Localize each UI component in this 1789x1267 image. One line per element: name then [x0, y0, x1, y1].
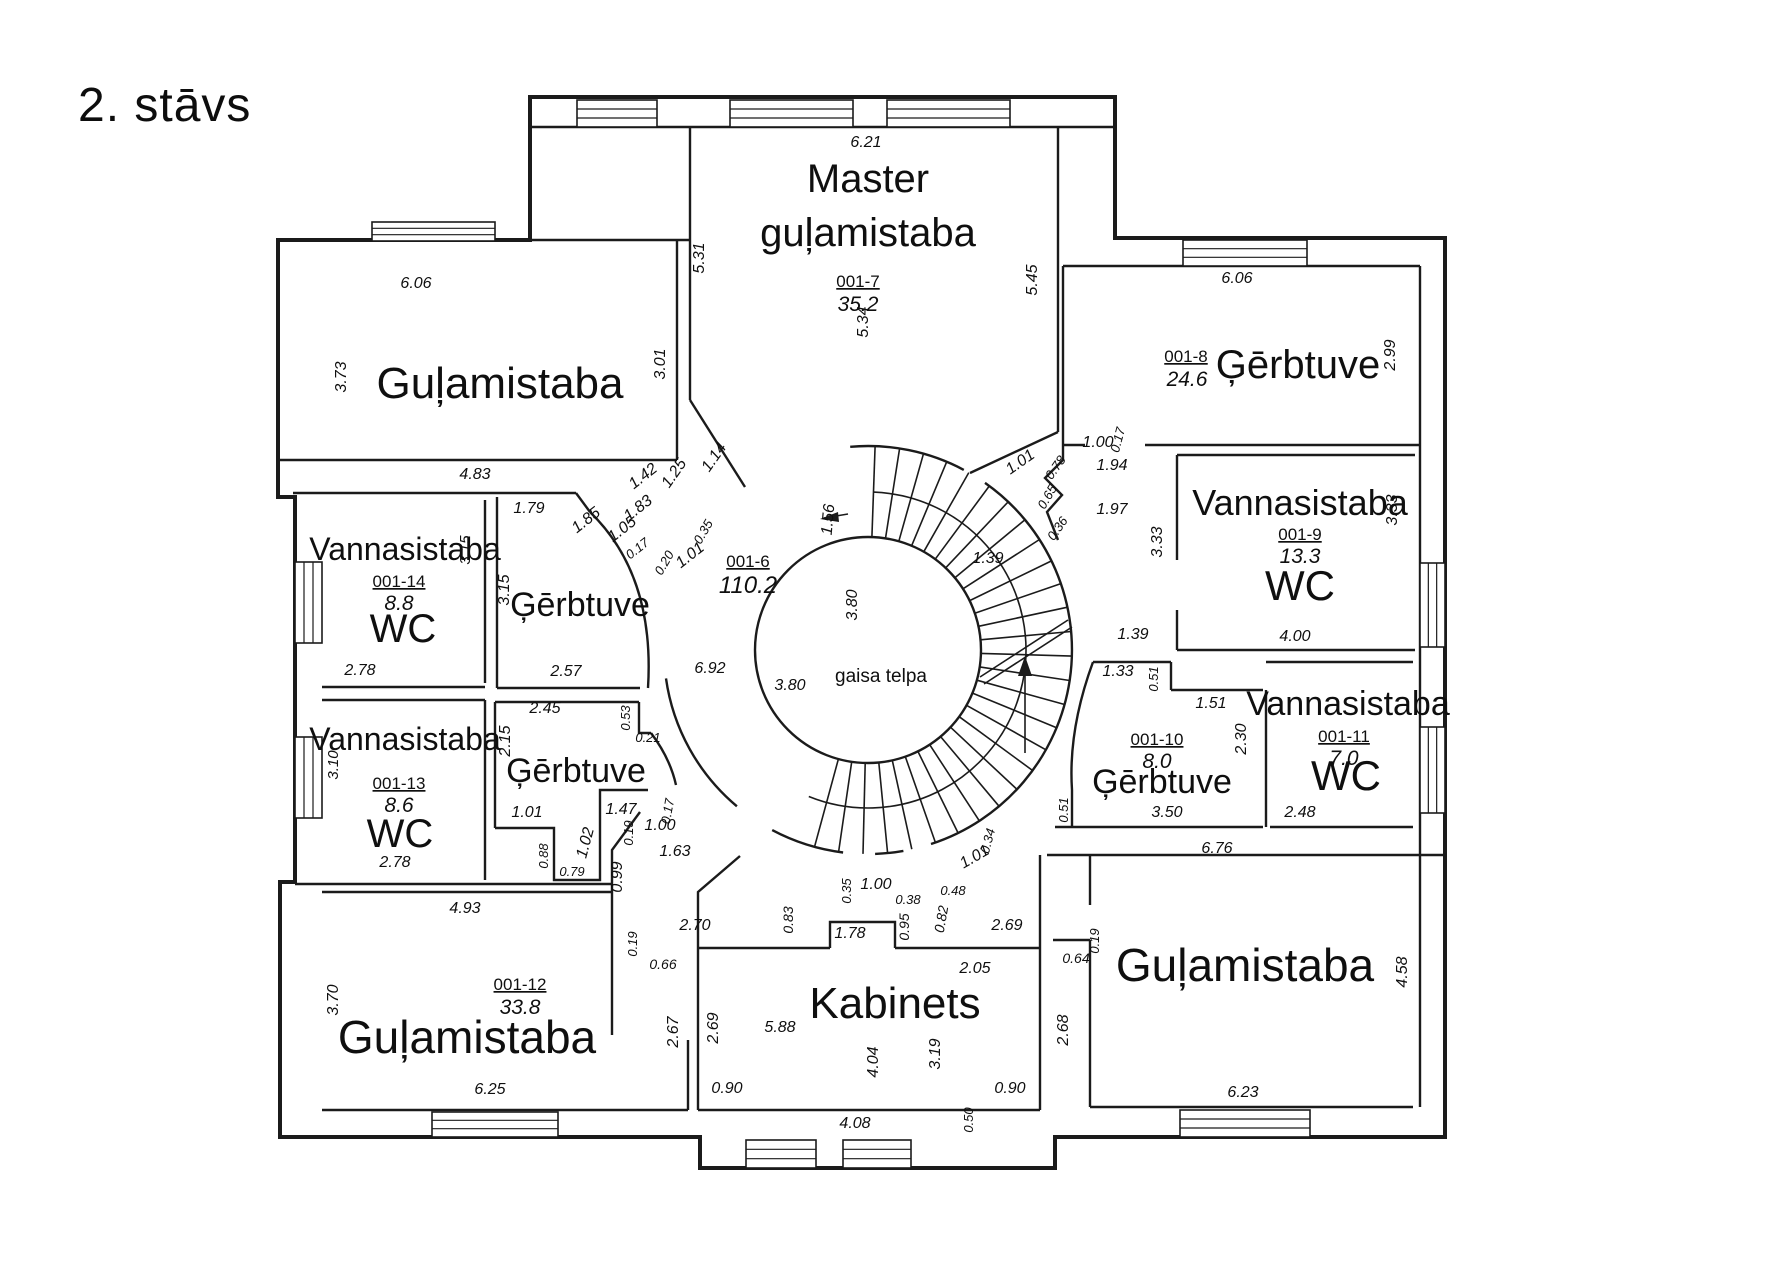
dimension-label: 3.50: [1151, 804, 1182, 821]
dimension-label: 4.04: [865, 1046, 882, 1077]
dimension-label: 0.17: [1107, 425, 1128, 454]
window-icon: [432, 1112, 558, 1137]
dimension-label: 0.35: [839, 878, 854, 904]
room-number-label: 001-8: [1164, 347, 1207, 366]
room-area-label: 8.6: [384, 794, 414, 817]
dimension-label: 5.34: [855, 306, 872, 337]
dimension-label: 0.34: [977, 827, 998, 855]
dimension-label: 1.78: [834, 925, 865, 942]
room-number-label: 001-7: [836, 272, 879, 291]
dimension-label: 1.02: [573, 825, 598, 860]
dimension-label: 3.15: [457, 535, 474, 565]
dimension-label: 1.01: [1003, 446, 1038, 478]
window-icon: [372, 222, 495, 241]
dimension-label: 1.56: [819, 503, 839, 536]
dimension-label: 1.42: [626, 460, 661, 493]
room-area-label: 13.3: [1280, 545, 1321, 568]
dimension-label: 0.83: [780, 906, 796, 933]
dimension-label: 0.65: [1034, 481, 1060, 511]
room-name-label: Guļamistaba: [1116, 939, 1375, 991]
dimension-label: 0.50: [961, 1107, 976, 1133]
dimension-label: 0.90: [711, 1080, 742, 1097]
window-icon: [887, 100, 1010, 127]
dimension-label: 3.73: [333, 361, 350, 392]
window-icon: [746, 1140, 816, 1168]
room-area-label: 8.0: [1142, 750, 1172, 773]
dimension-label: 3.33: [1384, 494, 1401, 525]
spiral-stair: [666, 446, 1072, 854]
dimension-label: 0.66: [649, 956, 676, 972]
dimension-label: 0.48: [940, 883, 966, 898]
dimension-label: 0.51: [1146, 666, 1161, 691]
dimension-label: 0.20: [651, 547, 677, 577]
dimension-label: 2.57: [549, 663, 582, 680]
dimension-label: 1.51: [1195, 695, 1226, 712]
room-name-label: WC: [1265, 562, 1335, 609]
dimension-label: 0.38: [895, 892, 921, 907]
dimension-label: 3.10: [325, 750, 342, 780]
room-number-label: 001-11: [1318, 727, 1370, 746]
dimension-label: 6.76: [1201, 840, 1232, 857]
window-icon: [295, 562, 322, 643]
dimension-label: 2.67: [665, 1015, 682, 1048]
dimension-label: 3.33: [1149, 526, 1166, 557]
dimension-label: 0.19: [625, 931, 640, 956]
room-name-label: guļamistaba: [760, 211, 976, 255]
labels-layer: GuļamistabaMasterguļamistabaĢērbtuveVann…: [309, 134, 1450, 1133]
window-icon: [1420, 563, 1445, 647]
dimension-label: 4.93: [449, 900, 480, 917]
room-number-label: 001-6: [726, 552, 769, 571]
room-name-label: Ģērbtuve: [506, 752, 646, 790]
dimension-label: 0.99: [609, 861, 626, 892]
room-area-label: 110.2: [719, 572, 777, 599]
dimension-label: 0.51: [1056, 797, 1071, 822]
dimension-label: 1.85: [569, 504, 604, 537]
room-number-label: 001-12: [494, 975, 547, 994]
dimension-label: 6.23: [1227, 1084, 1258, 1101]
dimension-label: 0.90: [994, 1080, 1025, 1097]
dimension-label: 0.21: [635, 730, 660, 745]
text-label: gaisa telpa: [835, 666, 927, 687]
window-icon: [843, 1140, 911, 1168]
room-number-label: 001-10: [1131, 730, 1184, 749]
dimension-label: 3.01: [652, 348, 669, 379]
dimension-label: 3.80: [844, 589, 861, 620]
dimension-label: 0.19: [621, 820, 636, 845]
room-area-label: 24.6: [1166, 368, 1208, 391]
dimension-label: 0.53: [618, 705, 633, 731]
room-name-label: Master: [807, 157, 929, 201]
room-name-label: Vannasistaba: [1192, 482, 1408, 523]
room-name-label: Guļamistaba: [376, 359, 624, 408]
window-icon: [1183, 240, 1307, 266]
dimension-label: 1.63: [659, 843, 690, 860]
dimension-label: 4.08: [839, 1115, 870, 1132]
window-icon: [1420, 727, 1445, 813]
dimension-label: 5.31: [691, 242, 708, 273]
dimension-label: 6.92: [694, 660, 725, 677]
dimension-label: 4.83: [459, 466, 490, 483]
dimension-label: 0.95: [896, 913, 912, 940]
dimension-label: 6.06: [400, 275, 431, 292]
dimension-label: 3.19: [927, 1038, 944, 1069]
dimension-label: 2.05: [958, 960, 990, 977]
dimension-label: 4.58: [1394, 956, 1411, 987]
floor-title: 2. stāvs: [78, 78, 251, 133]
dimension-label: 2.69: [990, 917, 1022, 934]
dimension-label: 6.25: [474, 1081, 505, 1098]
dimension-label: 2.48: [1283, 804, 1315, 821]
floor-plan-svg: GuļamistabaMasterguļamistabaĢērbtuveVann…: [0, 0, 1789, 1267]
dimension-label: 1.39: [1117, 626, 1148, 643]
dimension-label: 1.94: [1096, 457, 1127, 474]
dimension-label: 2.15: [497, 725, 514, 757]
dimension-label: 1.39: [972, 550, 1003, 567]
dimension-label: 3.15: [496, 574, 513, 605]
window-icon: [730, 100, 853, 127]
dimension-label: 6.06: [1221, 270, 1252, 287]
room-area-label: 8.8: [384, 592, 414, 615]
dimension-label: 0.64: [1062, 950, 1089, 966]
dimension-label: 5.45: [1024, 264, 1041, 295]
dimension-label: 1.01: [511, 804, 542, 821]
room-area-label: 33.8: [500, 996, 541, 1019]
dimension-label: 2.68: [1055, 1014, 1072, 1046]
window-icon: [1180, 1110, 1310, 1137]
dimension-label: 3.80: [774, 677, 805, 694]
dimension-label: 0.82: [931, 904, 952, 934]
floor-plan-page: 2. stāvs GuļamistabaMasterguļamistabaĢēr…: [0, 0, 1789, 1267]
dimension-label: 2.30: [1233, 723, 1250, 755]
dimension-label: 2.45: [528, 700, 560, 717]
dimension-label: 4.00: [1279, 628, 1310, 645]
room-name-label: WC: [367, 812, 434, 856]
room-name-label: Ģērbtuve: [1216, 343, 1381, 387]
dimension-label: 2.99: [1382, 339, 1399, 371]
dimension-label: 1.47: [605, 801, 637, 818]
window-icon: [577, 100, 657, 127]
room-area-label: 7.0: [1329, 747, 1359, 770]
dimension-label: 5.88: [764, 1019, 795, 1036]
dimension-label: 1.97: [1096, 501, 1128, 518]
dimension-label: 2.78: [378, 854, 410, 871]
room-number-label: 001-13: [373, 774, 426, 793]
dimension-label: 1.79: [513, 500, 544, 517]
dimension-label: 2.78: [343, 662, 375, 679]
dimension-label: 0.88: [536, 843, 551, 869]
dimension-label: 6.21: [850, 134, 881, 151]
room-number-label: 001-9: [1278, 525, 1321, 544]
dimension-label: 2.70: [678, 917, 710, 934]
dimension-label: 3.70: [325, 984, 342, 1015]
room-name-label: Vannasistaba: [1246, 685, 1450, 723]
room-name-label: Kabinets: [809, 979, 980, 1028]
dimension-label: 0.79: [559, 864, 584, 879]
room-name-label: Guļamistaba: [338, 1011, 597, 1063]
room-name-label: Ģērbtuve: [510, 586, 650, 624]
dimension-label: 0.17: [623, 534, 653, 562]
dimension-label: 1.00: [860, 876, 891, 893]
dimension-label: 1.33: [1102, 663, 1133, 680]
dimension-label: 2.69: [705, 1012, 722, 1044]
room-number-label: 001-14: [373, 572, 426, 591]
